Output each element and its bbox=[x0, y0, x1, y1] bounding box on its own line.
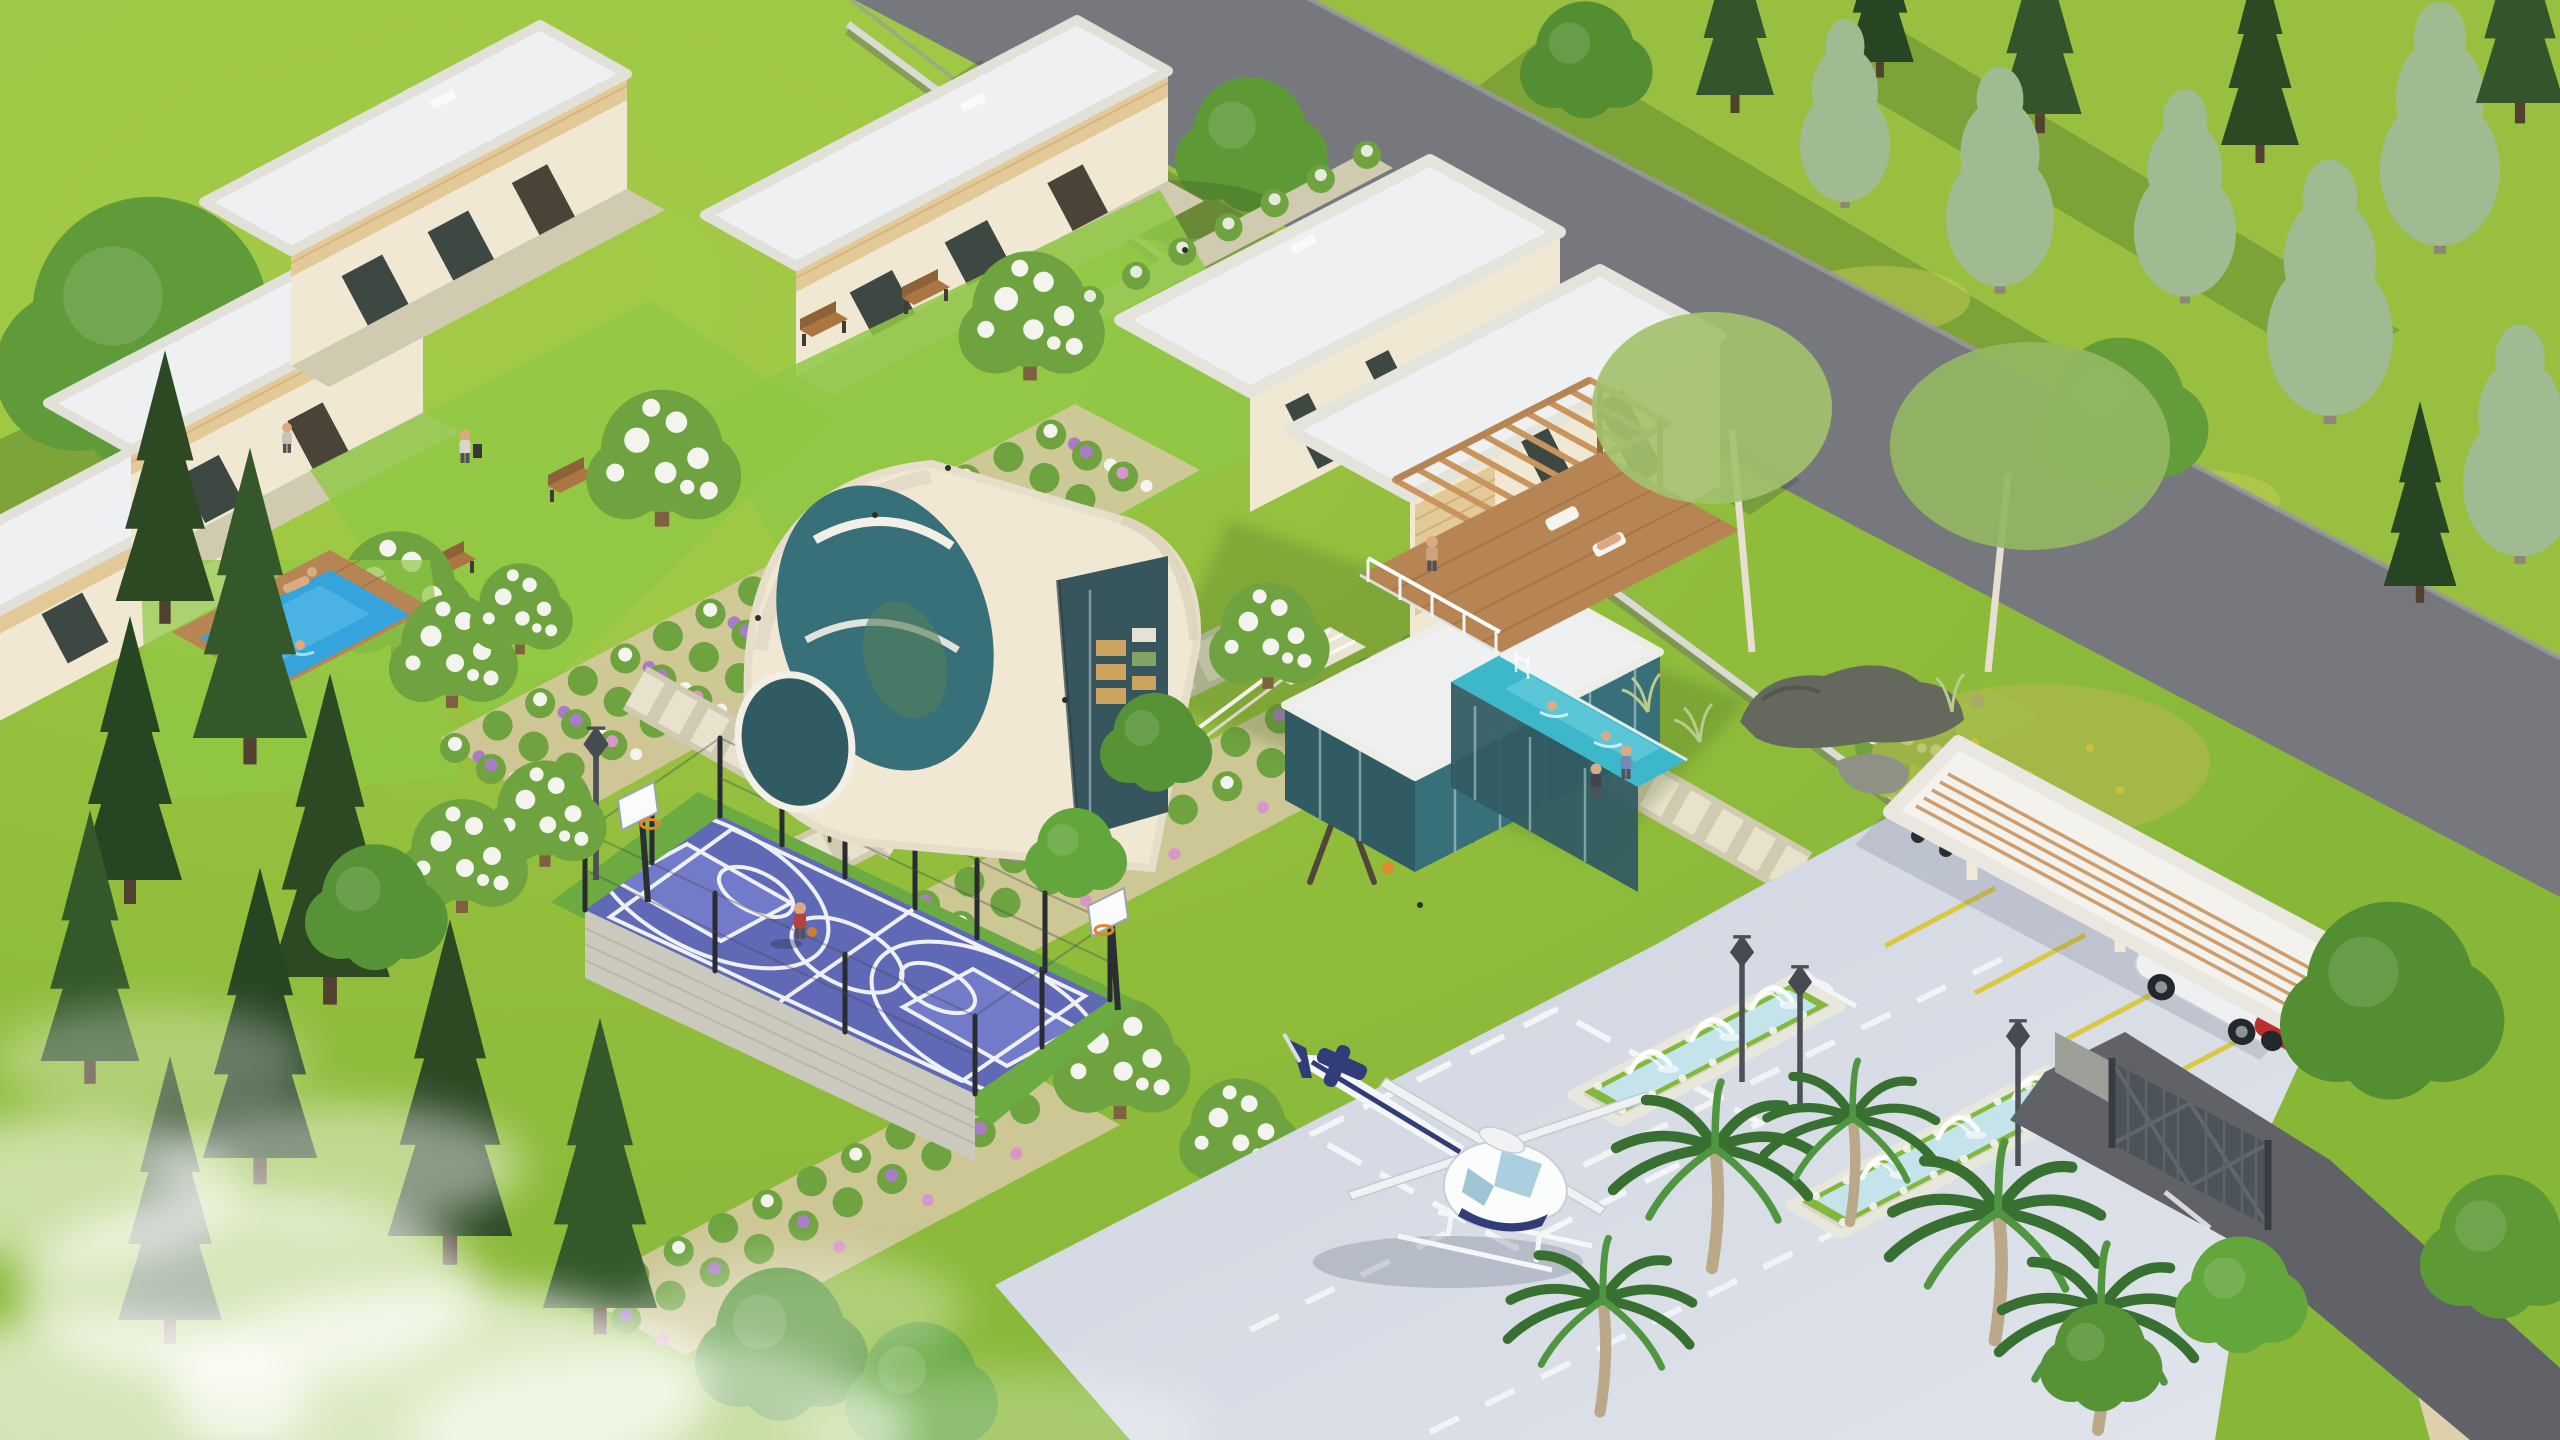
render-canvas bbox=[0, 0, 2560, 1440]
architectural-render bbox=[0, 0, 2560, 1440]
sunlight-wash bbox=[0, 0, 2560, 1440]
